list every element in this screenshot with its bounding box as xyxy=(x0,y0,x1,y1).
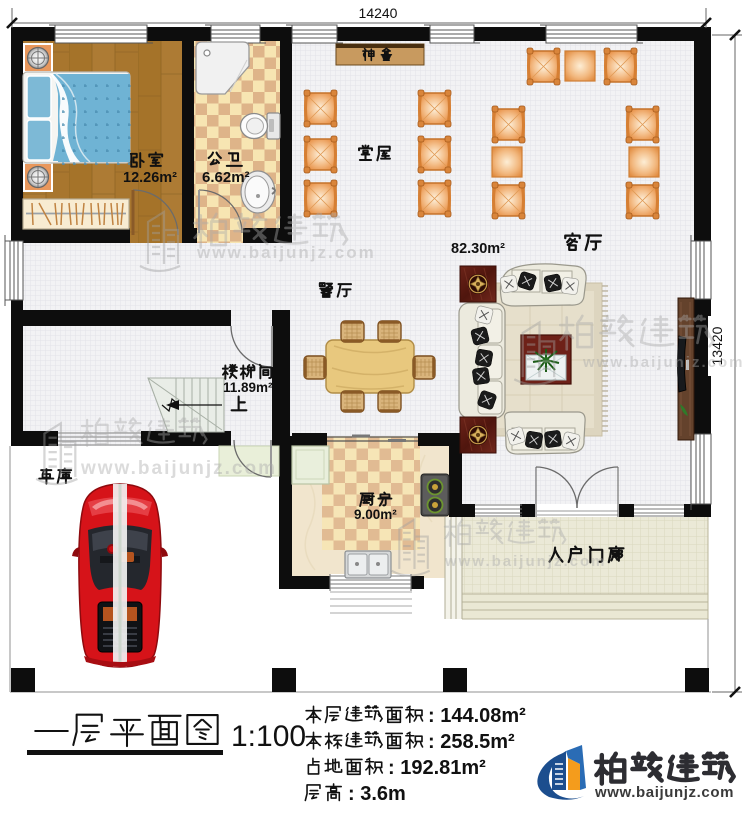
svg-text:www.baijunjz.com: www.baijunjz.com xyxy=(196,243,376,262)
svg-text:9.00m²: 9.00m² xyxy=(354,507,397,522)
svg-text:82.30m²: 82.30m² xyxy=(451,241,505,257)
svg-text:11.89m²: 11.89m² xyxy=(223,380,273,395)
svg-text:14240: 14240 xyxy=(359,5,398,21)
svg-text:www.baijunjz.com: www.baijunjz.com xyxy=(444,553,606,570)
svg-text:6.62m²: 6.62m² xyxy=(202,169,250,186)
svg-text:: 192.81m²: : 192.81m² xyxy=(388,757,486,779)
svg-text:1:100: 1:100 xyxy=(231,720,306,753)
svg-text:: 258.5m²: : 258.5m² xyxy=(428,731,515,753)
svg-text:: 144.08m²: : 144.08m² xyxy=(428,705,526,727)
svg-text:www.baijunjz.com: www.baijunjz.com xyxy=(582,354,744,371)
svg-text:www.baijunjz.com: www.baijunjz.com xyxy=(80,458,277,479)
svg-text:www.baijunjz.com: www.baijunjz.com xyxy=(594,784,734,801)
svg-text:: 3.6m: : 3.6m xyxy=(348,783,406,805)
svg-text:12.26m²: 12.26m² xyxy=(123,170,177,186)
